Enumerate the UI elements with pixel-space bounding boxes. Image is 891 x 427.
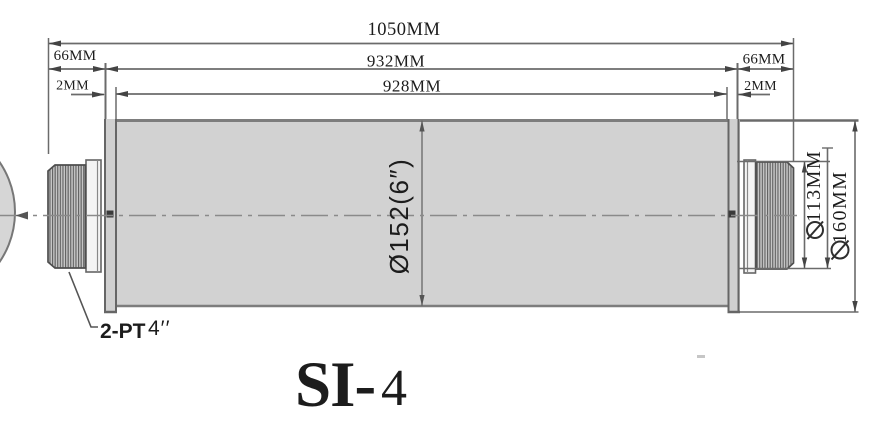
svg-text:2MM: 2MM [744, 79, 777, 94]
svg-text:932MM: 932MM [367, 52, 425, 71]
svg-text:160MM: 160MM [829, 170, 851, 243]
svg-text:SI-: SI- [295, 349, 375, 421]
svg-text:928MM: 928MM [383, 77, 441, 96]
svg-text:Ø152(6″): Ø152(6″) [384, 158, 414, 275]
svg-text:1050MM: 1050MM [368, 20, 441, 40]
svg-text:4′′: 4′′ [148, 317, 171, 340]
svg-text:113MM: 113MM [803, 150, 825, 222]
svg-text:66MM: 66MM [54, 48, 97, 64]
svg-text:66MM: 66MM [743, 52, 786, 68]
svg-text:2MM: 2MM [56, 79, 89, 94]
svg-text:4: 4 [381, 360, 407, 417]
svg-text:2-PT: 2-PT [100, 320, 146, 343]
